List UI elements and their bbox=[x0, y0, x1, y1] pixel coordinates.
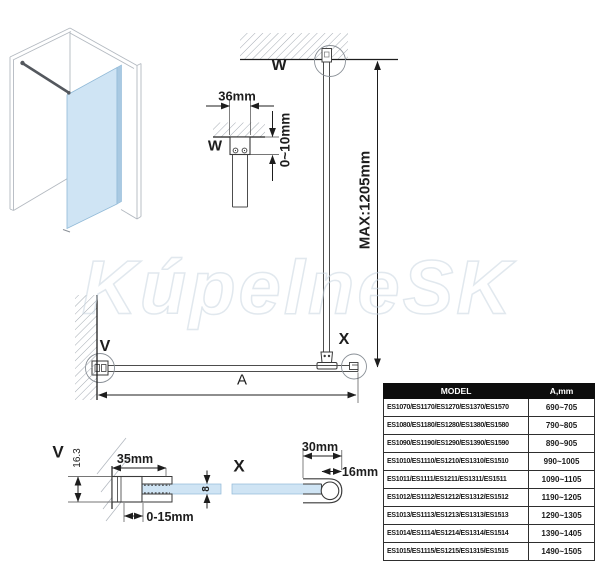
iso-glass-panel bbox=[67, 68, 117, 229]
model-header: MODEL bbox=[384, 384, 529, 399]
dim-163-label: 16.3 bbox=[73, 448, 83, 467]
detail-w-bracket bbox=[230, 137, 250, 155]
dim-gap-ext bbox=[250, 137, 279, 155]
table-row: ES1080/ES1180/ES1280/ES1380/ES1580790~80… bbox=[384, 417, 595, 435]
model-cell: ES1010/ES1110/ES1210/ES1310/ES1510 bbox=[384, 453, 529, 471]
a-mm-cell: 790~805 bbox=[529, 417, 595, 435]
label-w-detail: W bbox=[208, 139, 222, 154]
iso-left-wall bbox=[10, 28, 71, 211]
model-cell: ES1080/ES1180/ES1280/ES1380/ES1580 bbox=[384, 417, 529, 435]
a-mm-cell: 1190~1205 bbox=[529, 489, 595, 507]
model-size-table: MODEL A,mm ES1070/ES1170/ES1270/ES1370/E… bbox=[383, 383, 595, 561]
table-row: ES1013/ES1113/ES1213/ES1313/ES15131290~1… bbox=[384, 507, 595, 525]
a-mm-cell: 990~1005 bbox=[529, 453, 595, 471]
glass-end-bracket bbox=[350, 363, 359, 370]
detail-x-bar-section bbox=[321, 482, 339, 500]
detail-x-view bbox=[207, 450, 342, 509]
technical-drawing-page: KúpelneSK W 36mm 0~10mm W MAX:1205mm V X… bbox=[0, 0, 600, 585]
ceiling-mount-bracket bbox=[322, 49, 332, 63]
isometric-view bbox=[10, 28, 141, 232]
dim-max-label: MAX:1205mm bbox=[358, 151, 373, 249]
a-mm-cell: 690~705 bbox=[529, 399, 595, 417]
model-cell: ES1013/ES1113/ES1213/ES1313/ES1513 bbox=[384, 507, 529, 525]
dim-0-15mm-label: 0-15mm bbox=[146, 511, 193, 524]
table-row: ES1014/ES1114/ES1214/ES1314/ES15141390~1… bbox=[384, 525, 595, 543]
dim-30mm-label: 30mm bbox=[302, 441, 338, 454]
iso-floor-anchor bbox=[63, 230, 70, 233]
detail-v-view bbox=[68, 438, 221, 522]
table-row: ES1090/ES1190/ES1290/ES1390/ES1590890~90… bbox=[384, 435, 595, 453]
dim-0-10mm-label: 0~10mm bbox=[278, 113, 292, 167]
iso-support-bar bbox=[20, 61, 70, 95]
table-row: ES1011/ES1111/ES1211/ES1311/ES15111090~1… bbox=[384, 471, 595, 489]
dim-163-ext bbox=[68, 477, 112, 503]
a-mm-header: A,mm bbox=[529, 384, 595, 399]
dim-a-label: A bbox=[237, 373, 247, 388]
detail-w-bar bbox=[233, 155, 248, 208]
spec-table-body: ES1070/ES1170/ES1270/ES1370/ES1570690~70… bbox=[384, 399, 595, 561]
table-row: ES1010/ES1110/ES1210/ES1310/ES1510990~10… bbox=[384, 453, 595, 471]
model-cell: ES1090/ES1190/ES1290/ES1390/ES1590 bbox=[384, 435, 529, 453]
label-v-detail: V bbox=[52, 444, 63, 461]
label-x-detail: X bbox=[233, 458, 244, 475]
table-row: ES1015/ES1115/ES1215/ES1315/ES15151490~1… bbox=[384, 543, 595, 561]
model-cell: ES1011/ES1111/ES1211/ES1311/ES1511 bbox=[384, 471, 529, 489]
table-row: ES1012/ES1112/ES1212/ES1312/ES15121190~1… bbox=[384, 489, 595, 507]
a-mm-cell: 1390~1405 bbox=[529, 525, 595, 543]
model-cell: ES1012/ES1112/ES1212/ES1312/ES1512 bbox=[384, 489, 529, 507]
table-row: ES1070/ES1170/ES1270/ES1370/ES1570690~70… bbox=[384, 399, 595, 417]
dim-015-ext bbox=[124, 503, 143, 522]
label-w-main: W bbox=[271, 58, 286, 74]
wall-hatch bbox=[75, 295, 97, 400]
support-bar bbox=[324, 60, 330, 353]
a-mm-cell: 1490~1505 bbox=[529, 543, 595, 561]
bar-glass-joint bbox=[317, 352, 337, 369]
iso-glass-edge bbox=[117, 65, 122, 204]
model-cell: ES1070/ES1170/ES1270/ES1370/ES1570 bbox=[384, 399, 529, 417]
dim-16mm-label: 16mm bbox=[342, 466, 378, 479]
table-header-row: MODEL A,mm bbox=[384, 384, 595, 399]
detail-w-ceiling-hatch bbox=[213, 123, 265, 138]
dim-8-label: 8 bbox=[202, 486, 212, 492]
a-mm-cell: 890~905 bbox=[529, 435, 595, 453]
detail-x-glass bbox=[232, 484, 322, 494]
dim-30mm-ext bbox=[303, 450, 342, 478]
a-mm-cell: 1090~1105 bbox=[529, 471, 595, 489]
dim-36mm-label: 36mm bbox=[218, 90, 256, 103]
model-cell: ES1015/ES1115/ES1215/ES1315/ES1515 bbox=[384, 543, 529, 561]
a-mm-cell: 1290~1305 bbox=[529, 507, 595, 525]
label-v-main: V bbox=[100, 339, 111, 355]
label-x-main: X bbox=[339, 332, 350, 348]
dim-35mm-label: 35mm bbox=[117, 453, 153, 466]
model-cell: ES1014/ES1114/ES1214/ES1314/ES1514 bbox=[384, 525, 529, 543]
